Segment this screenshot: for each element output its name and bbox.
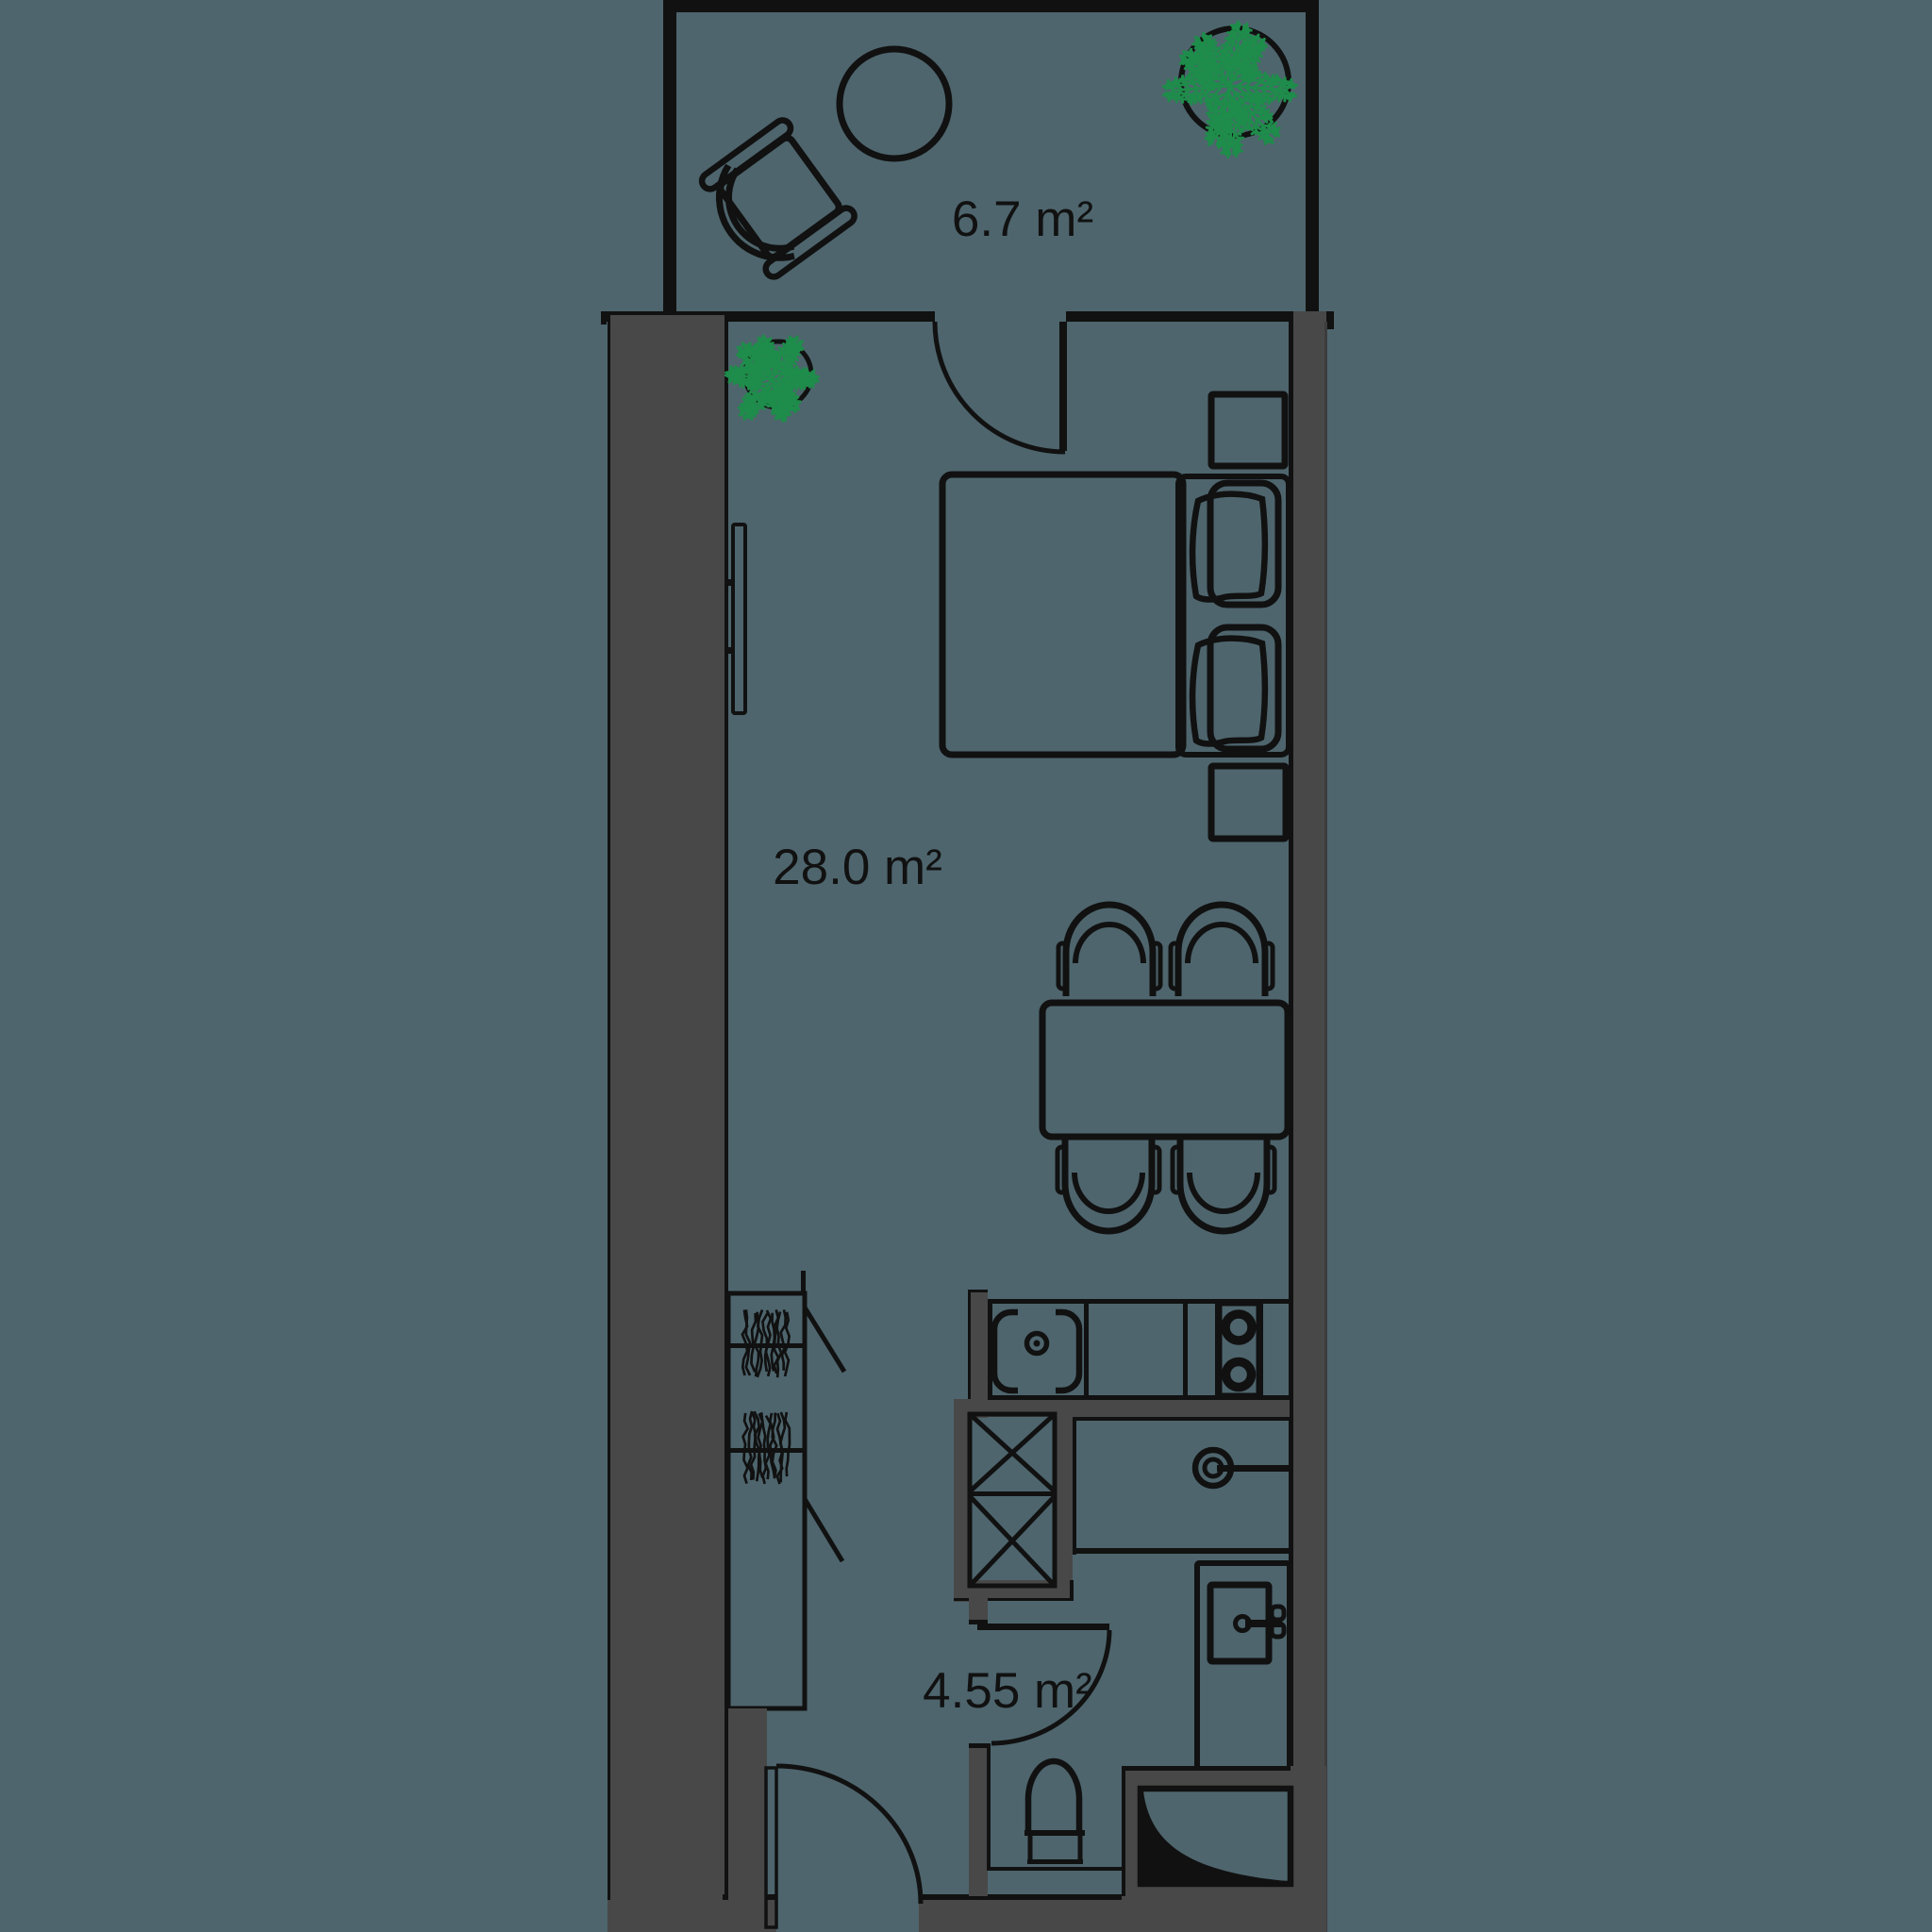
svg-text:28.0 m²: 28.0 m² — [773, 840, 942, 895]
svg-text:6.7 m²: 6.7 m² — [952, 192, 1093, 247]
svg-text:4.55 m²: 4.55 m² — [923, 1663, 1092, 1719]
